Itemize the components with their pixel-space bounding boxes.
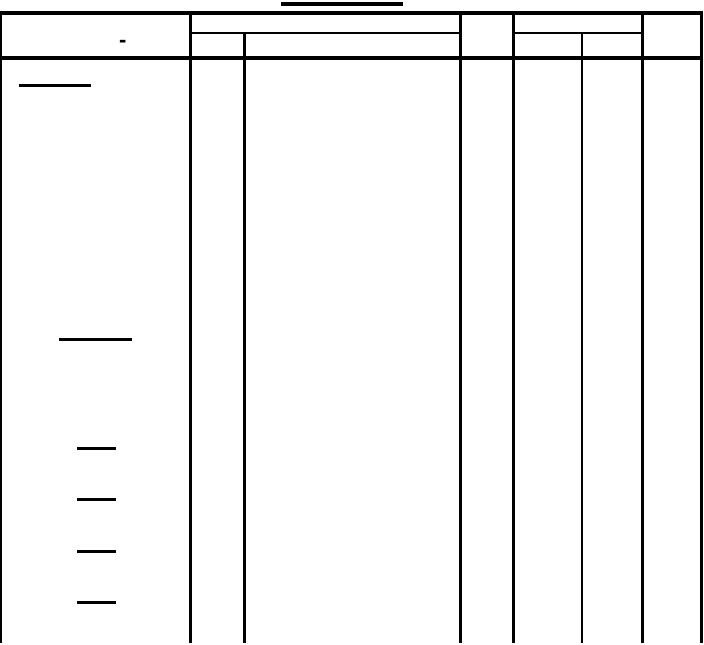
table-top-border (0, 11, 703, 15)
blank-underline-2 (59, 338, 132, 341)
column-divider-3 (512, 11, 515, 643)
scanned-table-form: - (0, 0, 704, 645)
subcolumn-divider-2 (581, 32, 583, 643)
header-dash-mark: - (119, 27, 126, 53)
blank-underline-1 (19, 84, 91, 87)
subheader-divider-right-group (514, 32, 642, 34)
header-bottom-border (0, 56, 703, 60)
title-underline (281, 2, 403, 6)
blank-underline-5 (77, 550, 116, 553)
column-divider-2 (459, 11, 462, 643)
subcolumn-divider-1 (243, 32, 246, 643)
blank-underline-6 (77, 601, 116, 604)
table-left-border (0, 11, 2, 643)
blank-underline-3 (77, 447, 116, 450)
column-divider-4 (641, 11, 644, 643)
column-divider-1 (189, 11, 192, 643)
subheader-divider-left-group (190, 32, 460, 34)
table-right-border (700, 11, 703, 643)
blank-underline-4 (77, 498, 116, 501)
